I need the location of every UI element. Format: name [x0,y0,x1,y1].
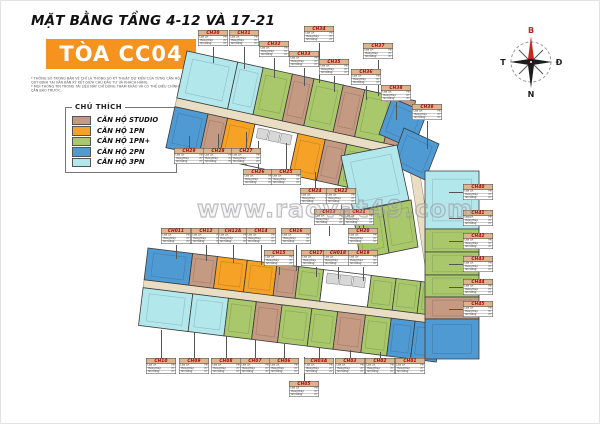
callout-connector [213,47,214,63]
unit-CH17 [367,275,396,310]
unit-callout-CH10: CH10Loại CH:PNThông thủy:m²Tim tường:m² [146,358,176,375]
unit-callout-CH37: CH37Loại CH:PNThông thủy:m²Tim tường:m² [363,43,393,60]
unit-CH011 [144,248,193,285]
unit-callout-CH27: CH27Loại CH:PNThông thủy:m²Tim tường:m² [231,148,261,165]
unit-spec-row: Tim tường:m² [230,43,259,46]
unit-callout-CH09: CH09Loại CH:PNThông thủy:m²Tim tường:m² [179,358,209,375]
unit-spec-row: Tim tường:m² [413,117,442,120]
unit-CH10 [139,288,193,332]
callout-connector [244,47,245,69]
unit-CH45 [425,319,479,359]
unit-spec-row: Tim tường:m² [396,371,425,374]
callout-connector [218,134,219,148]
callout-connector [449,264,463,265]
callout-connector [449,192,463,193]
elevator-shaft [256,128,269,140]
unit-callout-CH22: CH22Loại CH:PNThông thủy:m²Tim tường:m² [326,188,356,205]
unit-CH16 [295,267,324,302]
unit-callout-CH41: CH41Loại CH:PNThông thủy:m²Tim tường:m² [463,210,493,227]
unit-spec-row: Tim tường:m² [464,197,493,200]
unit-spec-row: Tim tường:m² [260,54,289,57]
unit-spec-row: Tim tường:m² [336,371,365,374]
unit-spec-row: Tim tường:m² [327,201,356,204]
unit-spec-row: Tim tường:m² [349,263,378,266]
callout-connector [176,245,177,259]
unit-callout-CH23: CH23Loại CH:PNThông thủy:m²Tim tường:m² [314,209,344,226]
unit-spec-row: Tim tường:m² [320,72,349,75]
elevator-shaft [268,131,281,143]
callout-connector [233,245,234,263]
unit-spec-row: Tim tường:m² [199,43,228,46]
unit-callout-CH30: CH30Loại CH:PNThông thủy:m²Tim tường:m² [198,30,228,47]
unit-callout-CH43: CH43Loại CH:PNThông thủy:m²Tim tường:m² [463,256,493,273]
unit-callout-CH01: CH01Loại CH:PNThông thủy:m²Tim tường:m² [395,358,425,375]
callout-connector [255,340,256,358]
callout-connector [363,267,364,281]
unit-callout-CH29: CH29Loại CH:PNThông thủy:m²Tim tường:m² [174,148,204,165]
callout-connector [366,86,367,100]
callout-connector [189,136,190,148]
unit-spec-row: Tim tường:m² [147,371,176,374]
unit-CH06 [278,305,312,346]
unit-spec-row: Tim tường:m² [305,371,334,374]
unit-callout-CH03: CH03Loại CH:PNThông thủy:m²Tim tường:m² [335,358,365,375]
unit-callout-CH44: CH44Loại CH:PNThông thủy:m²Tim tường:m² [463,279,493,296]
unit-callout-CH25: CH25Loại CH:PNThông thủy:m²Tim tường:m² [271,169,301,186]
callout-connector [261,245,262,265]
unit-callout-CH19: CH19Loại CH:PNThông thủy:m²Tim tường:m² [348,250,378,267]
unit-callout-CH33: CH33Loại CH:PNThông thủy:m²Tim tường:m² [289,51,319,68]
unit-spec-row: Tim tường:m² [382,98,411,101]
callout-connector [334,76,335,92]
unit-callout-CH14: CH14Loại CH:PNThông thủy:m²Tim tường:m² [246,228,276,245]
callout-connector [206,245,207,261]
unit-callout-CH26: CH26Loại CH:PNThông thủy:m²Tim tường:m² [243,169,273,186]
unit-callout-CH45: CH45Loại CH:PNThông thủy:m²Tim tường:m² [463,301,493,318]
unit-CH018 [392,279,421,314]
unit-spec-row: Tim tường:m² [464,314,493,317]
unit-callout-CH05: CH05Loại CH:PNThông thủy:m²Tim tường:m² [289,381,319,398]
unit-CH12A [214,257,248,292]
unit-callout-CH12: CH12Loại CH:PNThông thủy:m²Tim tường:m² [191,228,221,245]
unit-callout-CH06: CH06Loại CH:PNThông thủy:m²Tim tường:m² [269,358,299,375]
unit-spec-row: Tim tường:m² [272,182,301,185]
callout-connector [396,102,397,120]
unit-spec-row: Tim tường:m² [219,241,248,244]
unit-spec-row: Tim tường:m² [315,222,344,225]
callout-connector [284,344,285,358]
unit-spec-row: Tim tường:m² [464,223,493,226]
callout-connector [315,172,316,188]
callout-connector [449,241,463,242]
unit-callout-CH42: CH42Loại CH:PNThông thủy:m²Tim tường:m² [463,233,493,250]
callout-connector [319,348,320,358]
unit-CH03 [361,315,392,356]
unit-spec-row: Tim tường:m² [345,222,374,225]
callout-connector [246,132,247,148]
unit-CH02 [387,318,416,359]
unit-callout-CH08: CH08Loại CH:PNThông thủy:m²Tim tường:m² [211,358,241,375]
callout-connector [350,350,351,358]
unit-spec-row: Tim tường:m² [364,56,393,59]
unit-CH03A [333,312,366,353]
unit-CH30 [177,51,238,109]
unit-spec-row: Tim tường:m² [290,394,319,397]
unit-CH05 [307,308,338,349]
callout-connector [161,330,162,358]
unit-callout-CH36: CH36Loại CH:PNThông thủy:m²Tim tường:m² [351,69,381,86]
unit-spec-row: Tim tường:m² [192,241,221,244]
callout-connector [194,332,195,358]
unit-spec-row: Tim tường:m² [305,39,334,42]
unit-callout-CH34: CH34Loại CH:PNThông thủy:m²Tim tường:m² [304,26,334,43]
unit-spec-row: Tim tường:m² [290,64,319,67]
unit-spec-row: Tim tường:m² [244,182,273,185]
callout-connector [338,267,339,279]
unit-callout-CH40: CH40Loại CH:PNThông thủy:m²Tim tường:m² [463,184,493,201]
unit-callout-CH28: CH28Loại CH:PNThông thủy:m²Tim tường:m² [203,148,233,165]
unit-spec-row: Tim tường:m² [241,371,270,374]
unit-callout-CH16: CH16Loại CH:PNThông thủy:m²Tim tường:m² [281,228,311,245]
unit-CH07 [252,302,283,343]
unit-callout-CH35: CH35Loại CH:PNThông thủy:m²Tim tường:m² [319,59,349,76]
unit-callout-CH20: CH20Loại CH:PNThông thủy:m²Tim tường:m² [348,228,378,245]
unit-spec-row: Tim tường:m² [204,161,233,164]
callout-connector [449,287,463,288]
unit-callout-CH011: CH011Loại CH:PNThông thủy:m²Tim tường:m² [161,228,191,245]
unit-callout-CH38: CH38Loại CH:PNThông thủy:m²Tim tường:m² [381,85,411,102]
unit-callout-CH07: CH07Loại CH:PNThông thủy:m²Tim tường:m² [240,358,270,375]
unit-spec-row: Tim tường:m² [282,241,311,244]
callout-connector [274,58,275,78]
unit-spec-row: Tim tường:m² [349,241,378,244]
callout-connector [304,68,305,86]
unit-CH09 [188,294,228,336]
unit-callout-CH03A: CH03ALoại CH:PNThông thủy:m²Tim tường:m² [304,358,334,375]
unit-callout-CH12A: CH12ALoại CH:PNThông thủy:m²Tim tường:m² [218,228,248,245]
callout-connector [449,309,463,310]
unit-spec-row: Tim tường:m² [366,371,395,374]
elevator-shaft [353,276,366,287]
unit-spec-row: Tim tường:m² [232,161,261,164]
unit-callout-CH15: CH15Loại CH:PNThông thủy:m²Tim tường:m² [264,250,294,267]
callout-connector [279,267,280,275]
callout-connector [296,245,297,271]
floorplan-page: MẶT BẰNG TẦNG 4-12 VÀ 17-21 TÒA CC04 * T… [0,0,600,424]
unit-CH12 [189,254,218,289]
unit-spec-row: Tim tường:m² [270,371,299,374]
callout-connector [449,218,463,219]
unit-callout-CH02: CH02Loại CH:PNThông thủy:m²Tim tường:m² [365,358,395,375]
callout-connector [427,121,428,149]
unit-callout-CH32: CH32Loại CH:PNThông thủy:m²Tim tường:m² [259,41,289,58]
unit-spec-row: Tim tường:m² [212,371,241,374]
unit-spec-row: Tim tường:m² [464,269,493,272]
elevator-shaft [339,275,352,286]
unit-callout-CH31: CH31Loại CH:PNThông thủy:m²Tim tường:m² [229,30,259,47]
unit-CH08 [224,298,256,339]
unit-spec-row: Tim tường:m² [352,82,381,85]
unit-spec-row: Tim tường:m² [175,161,204,164]
callout-connector [226,336,227,358]
unit-spec-row: Tim tường:m² [464,292,493,295]
unit-spec-row: Tim tường:m² [180,371,209,374]
unit-spec-row: Tim tường:m² [265,263,294,266]
unit-callout-CH21: CH21Loại CH:PNThông thủy:m²Tim tường:m² [344,209,374,226]
unit-spec-row: Tim tường:m² [162,241,191,244]
callout-connector [286,143,287,169]
unit-callout-CH39: CH39Loại CH:PNThông thủy:m²Tim tường:m² [412,104,442,121]
callout-connector [316,267,317,277]
unit-spec-row: Tim tường:m² [464,246,493,249]
callout-connector [329,226,330,236]
unit-spec-row: Tim tường:m² [247,241,276,244]
